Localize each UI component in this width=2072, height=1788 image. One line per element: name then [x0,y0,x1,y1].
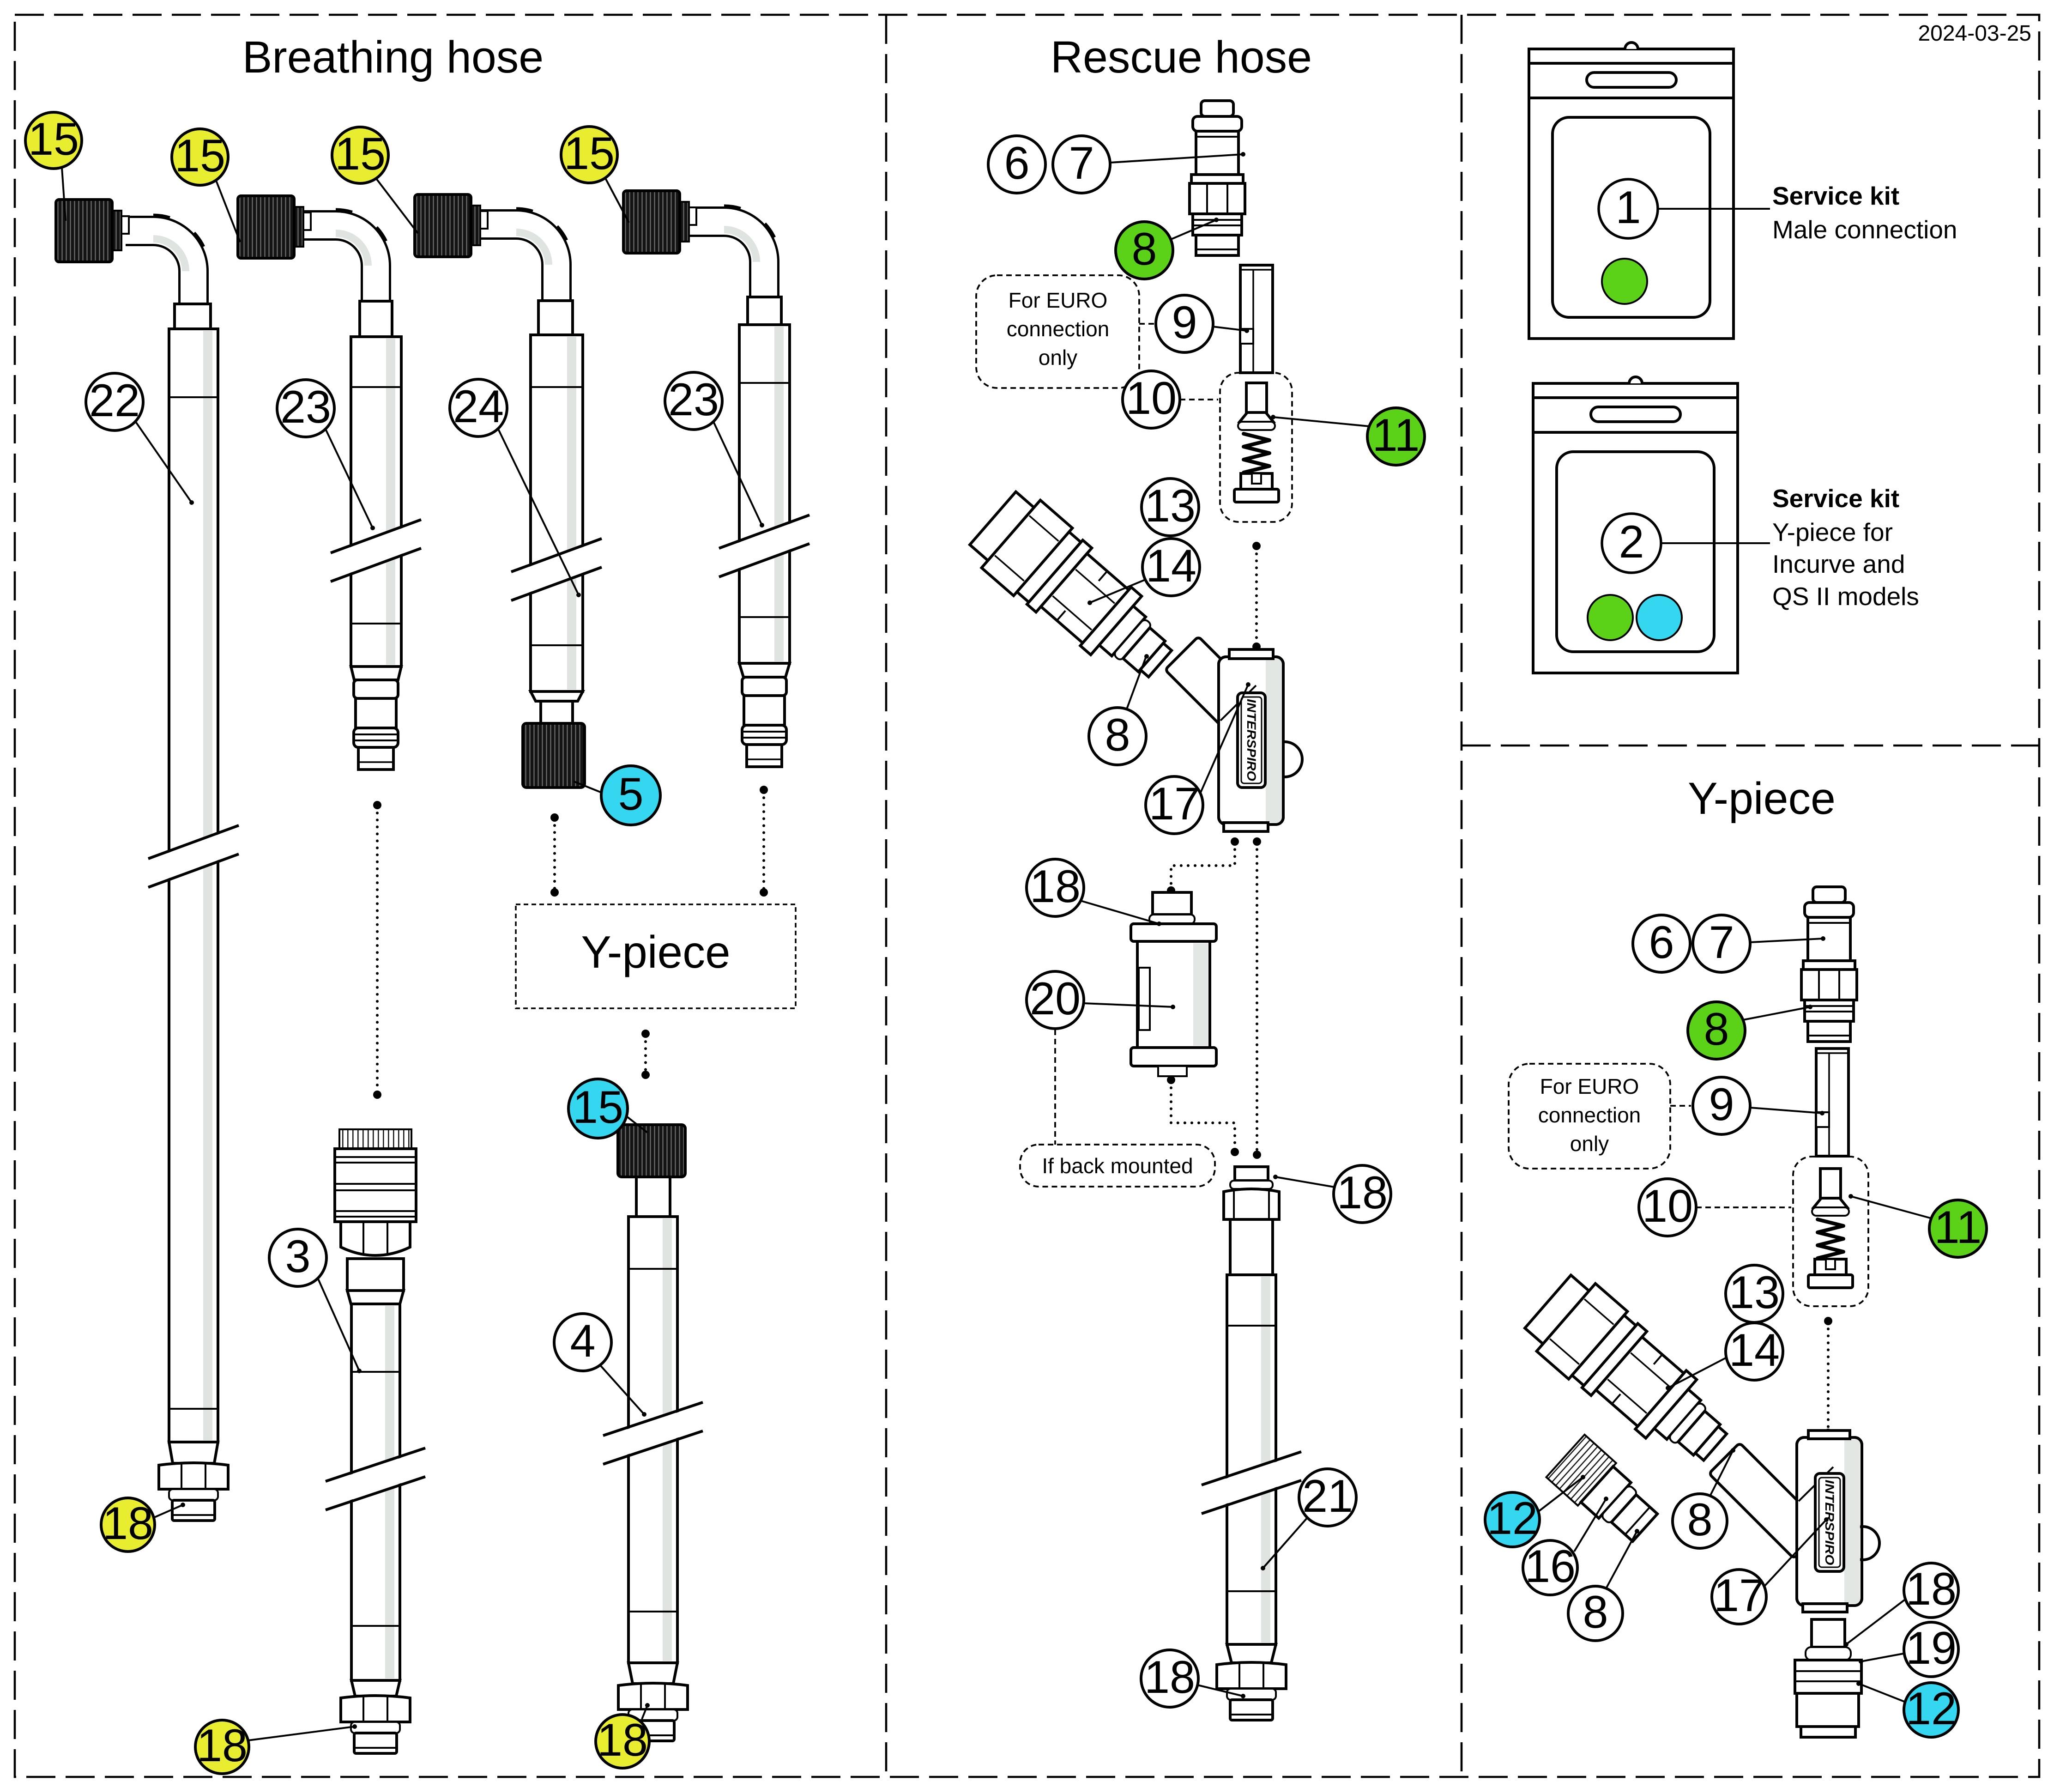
svg-text:connection: connection [1007,317,1110,341]
svg-text:15: 15 [564,127,615,179]
svg-text:15: 15 [573,1081,623,1133]
svg-text:only: only [1570,1132,1609,1156]
svg-text:8: 8 [1105,709,1130,760]
svg-text:22: 22 [89,375,140,426]
svg-text:6: 6 [1649,916,1674,968]
svg-text:8: 8 [1687,1494,1712,1545]
svg-text:1: 1 [1615,182,1641,233]
svg-text:14: 14 [1146,540,1196,591]
svg-text:8: 8 [1131,223,1157,274]
svg-text:15: 15 [28,113,79,164]
svg-text:15: 15 [175,130,225,181]
svg-text:10: 10 [1642,1180,1693,1231]
svg-text:Male connection: Male connection [1772,215,1957,244]
svg-text:8: 8 [1704,1003,1729,1055]
svg-text:13: 13 [1729,1267,1780,1318]
svg-text:only: only [1039,345,1077,370]
svg-text:9: 9 [1709,1079,1734,1130]
svg-text:INTERSPIRO: INTERSPIRO [1244,699,1258,781]
svg-text:Y-piece: Y-piece [1688,773,1836,824]
svg-text:18: 18 [1030,861,1081,912]
svg-text:For EURO: For EURO [1009,288,1108,312]
svg-text:18: 18 [597,1714,648,1765]
svg-text:18: 18 [103,1497,153,1549]
svg-text:Y-piece for: Y-piece for [1772,518,1893,546]
svg-text:3: 3 [285,1230,310,1282]
svg-text:5: 5 [618,768,643,819]
svg-text:10: 10 [1126,372,1177,424]
svg-text:15: 15 [335,128,386,179]
svg-text:14: 14 [1729,1324,1780,1376]
svg-text:12: 12 [1906,1683,1957,1734]
svg-text:23: 23 [668,374,719,425]
svg-text:4: 4 [570,1315,595,1366]
svg-text:Incurve and: Incurve and [1772,550,1905,578]
svg-text:Y-piece: Y-piece [581,927,730,977]
svg-text:Rescue hose: Rescue hose [1051,32,1312,82]
svg-text:QS II models: QS II models [1772,582,1919,611]
svg-text:19: 19 [1906,1622,1957,1673]
svg-text:For EURO: For EURO [1540,1074,1639,1098]
svg-text:18: 18 [1906,1563,1957,1614]
svg-text:8: 8 [1583,1586,1608,1637]
svg-text:18: 18 [1337,1167,1388,1218]
svg-text:18: 18 [197,1720,248,1771]
svg-text:9: 9 [1172,297,1197,348]
svg-text:7: 7 [1709,916,1734,968]
svg-text:16: 16 [1525,1540,1576,1592]
svg-text:21: 21 [1302,1470,1353,1521]
svg-text:24: 24 [453,381,504,432]
svg-text:12: 12 [1487,1492,1538,1544]
svg-text:If back mounted: If back mounted [1042,1154,1193,1178]
svg-text:7: 7 [1069,137,1094,188]
svg-text:Service kit: Service kit [1772,182,1899,210]
svg-text:Service kit: Service kit [1772,484,1899,513]
svg-text:13: 13 [1145,480,1196,531]
svg-text:20: 20 [1030,973,1081,1024]
svg-text:2024-03-25: 2024-03-25 [1918,21,2031,46]
svg-text:17: 17 [1149,778,1200,829]
svg-text:11: 11 [1372,409,1420,461]
svg-text:2: 2 [1619,516,1644,567]
svg-text:6: 6 [1004,137,1029,188]
svg-text:Breathing hose: Breathing hose [242,32,544,82]
svg-text:18: 18 [1144,1651,1195,1703]
svg-text:11: 11 [1934,1201,1982,1253]
svg-text:17: 17 [1714,1570,1764,1621]
svg-text:connection: connection [1538,1103,1641,1127]
svg-text:23: 23 [280,381,331,432]
